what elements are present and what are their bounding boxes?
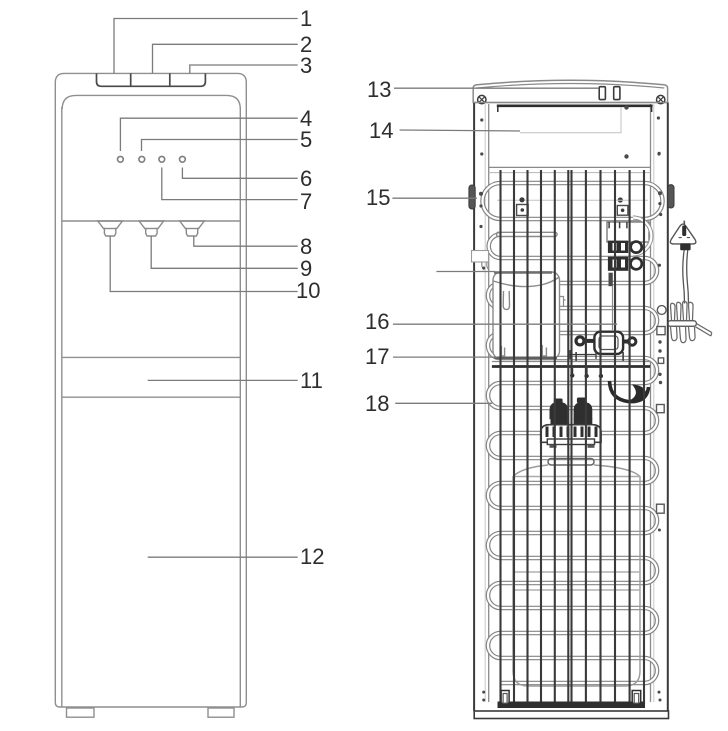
svg-text:13: 13 xyxy=(367,77,391,102)
svg-text:15: 15 xyxy=(366,185,390,210)
svg-text:11: 11 xyxy=(300,368,323,393)
svg-text:18: 18 xyxy=(365,391,389,416)
svg-text:1: 1 xyxy=(300,6,312,31)
svg-text:12: 12 xyxy=(300,544,324,569)
svg-text:16: 16 xyxy=(365,309,389,334)
svg-text:14: 14 xyxy=(369,118,393,143)
svg-text:10: 10 xyxy=(296,278,320,303)
svg-text:17: 17 xyxy=(365,344,389,369)
svg-text:6: 6 xyxy=(300,166,312,191)
svg-text:7: 7 xyxy=(300,189,312,214)
svg-text:3: 3 xyxy=(300,53,312,78)
svg-text:5: 5 xyxy=(300,127,312,152)
